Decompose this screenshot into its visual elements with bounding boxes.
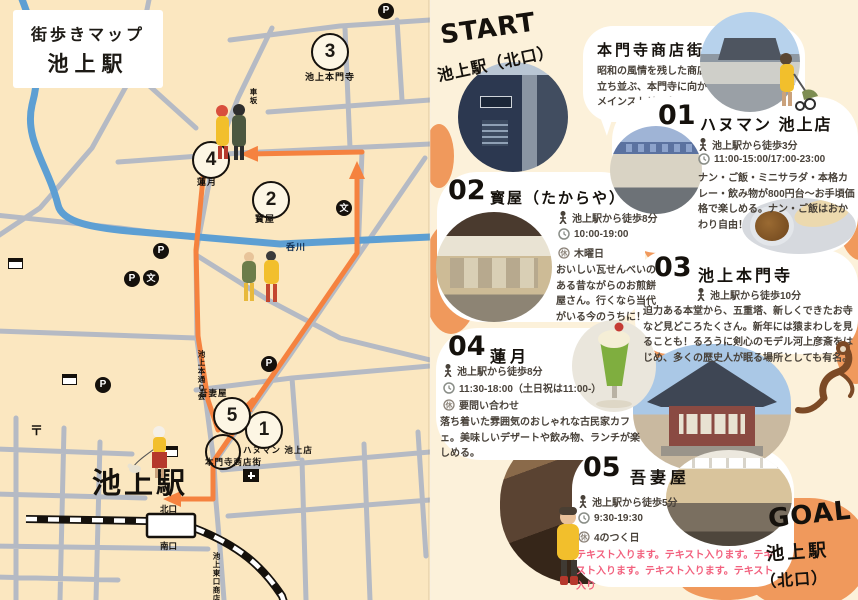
station-windows — [482, 120, 508, 146]
stop-03-walk-row: 池上駅から徒歩10分 — [696, 287, 801, 302]
awning-stripes — [620, 144, 692, 152]
label-hanuman: ハヌマン 池上店 — [243, 444, 313, 456]
stop-02-hours-row: 10:00-19:00 — [558, 228, 628, 240]
stop-04-hours-row: 11:30-18:00（土日祝は11:00-） — [443, 380, 601, 395]
showcase — [450, 258, 538, 288]
walk-icon — [443, 364, 453, 377]
stop-05-desc: テキスト入ります。テキスト入ります。テキスト入ります。テキスト入ります。テキスト… — [576, 548, 776, 595]
stop-01-number: 01 — [658, 100, 696, 131]
goal-exit: （北口） — [759, 564, 829, 593]
parking-icon: P — [95, 377, 111, 393]
street-lines — [0, 0, 430, 600]
map-title-card: 街歩きマップ 池上駅 — [13, 10, 163, 88]
closed-day-icon: 休 — [558, 247, 570, 259]
stop-02-title: 寳屋（たからや） — [490, 187, 626, 208]
parking-icon: P — [124, 271, 140, 287]
walking-map-flyer: { "map": { "title1": "街歩きマップ", "title2":… — [0, 0, 858, 600]
stop-01-hours-row: 11:00-15:00/17:00-23:00 — [698, 153, 825, 165]
closed-day-icon: 休 — [443, 399, 455, 411]
clock-icon — [558, 228, 570, 240]
walking-couple-illustration — [238, 250, 286, 306]
stop-01-desc: ナン・ご飯・ミニサラダ・本格カレー・飲み物が800円台〜お手頃価格で楽しめる。ナ… — [698, 171, 856, 233]
stop-02-walk-row: 池上駅から徒歩8分 — [558, 210, 658, 225]
shop-icon — [62, 374, 77, 385]
dog-walker-illustration — [126, 424, 184, 480]
shop-signs — [678, 458, 780, 468]
takaraya-photo — [436, 212, 552, 322]
stop-02-closed-row: 休 木曜日 — [558, 245, 604, 260]
post-office-icon: 〒 — [30, 420, 43, 439]
stop-04-walk: 池上駅から徒歩8分 — [457, 363, 543, 378]
goal-person-illustration — [548, 506, 596, 590]
label-hondori: 池上本通り会 — [196, 350, 207, 401]
map-marker-3: 3 — [311, 33, 349, 71]
railway-line — [26, 514, 284, 600]
label-south-exit: 南口 — [160, 540, 177, 552]
stop-05-number: 05 — [583, 452, 621, 483]
stroller-person-illustration — [772, 52, 824, 116]
stop-03-walk: 池上駅から徒歩10分 — [710, 287, 801, 302]
stop-05-title: 吾妻屋 — [630, 464, 690, 488]
label-higashiguchi: 池上東口商店街 — [211, 552, 222, 600]
label-takaraya: 寳屋 — [255, 212, 275, 225]
school-icon: 文 — [336, 200, 352, 216]
svg-text:休: 休 — [560, 248, 569, 257]
station-building — [147, 514, 195, 537]
shop-icon — [8, 258, 23, 269]
parking-icon: P — [378, 3, 394, 19]
walk-icon — [698, 138, 708, 151]
stop-04-number: 04 — [448, 331, 486, 362]
stop-03-title: 池上本門寺 — [698, 262, 793, 286]
walk-icon — [696, 288, 706, 301]
map-marker-5: 5 — [213, 397, 251, 435]
stop-04-walk-row: 池上駅から徒歩8分 — [443, 363, 543, 378]
map-title-line1: 街歩きマップ — [31, 21, 145, 45]
map-svg — [0, 0, 430, 600]
clock-icon — [443, 382, 455, 394]
stop-05-hours: 9:30-19:30 — [594, 513, 643, 524]
stop-01-walk: 池上駅から徒歩3分 — [712, 137, 798, 152]
school-icon: 文 — [143, 270, 159, 286]
label-shotengai: 本門寺商店街 — [205, 456, 262, 468]
walking-couple-illustration — [212, 100, 254, 166]
stop-01-walk-row: 池上駅から徒歩3分 — [698, 137, 798, 152]
stop-01-hours: 11:00-15:00/17:00-23:00 — [714, 154, 825, 165]
station-sign — [480, 96, 512, 108]
parking-icon: P — [153, 243, 169, 259]
label-river: 呑川 — [286, 240, 306, 253]
map-title-line2: 池上駅 — [48, 48, 129, 78]
parking-icon: P — [261, 356, 277, 372]
intro-title: 本門寺商店街 — [597, 39, 705, 60]
stop-02-number: 02 — [448, 175, 486, 206]
stop-02-hours: 10:00-19:00 — [574, 229, 628, 240]
walk-icon — [558, 211, 568, 224]
temple-building-icon — [243, 469, 259, 482]
svg-text:休: 休 — [445, 400, 454, 409]
stop-02-walk: 池上駅から徒歩8分 — [572, 210, 658, 225]
label-north-exit: 北口 — [160, 503, 177, 515]
page-fold-divider — [428, 0, 431, 600]
stop-04-closed-row: 休 要問い合わせ — [443, 397, 519, 412]
stop-05-walk: 池上駅から徒歩5分 — [592, 494, 678, 509]
stop-03-number: 03 — [654, 252, 692, 283]
stop-04-hours: 11:30-18:00（土日祝は11:00-） — [459, 380, 601, 395]
goal-station: 池上駅 — [765, 536, 830, 566]
label-rengetsu: 蓮月 — [197, 175, 217, 188]
stop-05-closed: 4のつく日 — [594, 529, 640, 544]
guide-page: START 池上駅（北口） 本門寺商店街 昭和の風情を残した商店が立ち並ぶ、本門… — [430, 0, 858, 600]
map-page: 街歩きマップ 池上駅 1 2 3 4 5 池上本門寺 蓮月 寳屋 吾妻屋 ハヌマ… — [0, 0, 430, 600]
label-honmonji: 池上本門寺 — [305, 70, 355, 83]
clock-icon — [698, 153, 710, 165]
monkey-illustration — [786, 340, 858, 424]
stop-02-closed: 木曜日 — [574, 245, 604, 260]
stop-04-closed: 要問い合わせ — [459, 397, 519, 412]
